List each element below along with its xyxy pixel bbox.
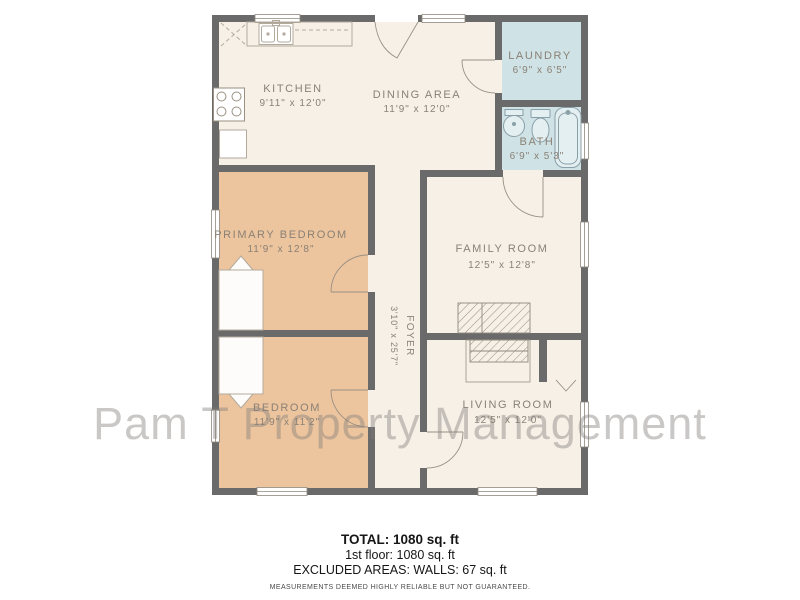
window-kitchen <box>255 15 300 23</box>
window-dining <box>422 15 465 23</box>
label-laundry: LAUNDRY <box>508 50 572 62</box>
floor1-area: 1st floor: 1080 sq. ft <box>0 548 800 563</box>
total-area: TOTAL: 1080 sq. ft <box>0 532 800 548</box>
label-dining-area: DINING AREA <box>373 89 462 101</box>
excluded-areas: EXCLUDED AREAS: WALLS: 67 sq. ft <box>0 563 800 578</box>
kitchen-sink-icon <box>259 24 293 45</box>
label-kitchen: KITCHEN <box>263 83 322 95</box>
disclaimer-text: MEASUREMENTS DEEMED HIGHLY RELIABLE BUT … <box>0 584 800 591</box>
dims-foyer: 3'10" x 25'7" <box>389 306 399 366</box>
dims-bath: 6'9" x 5'3" <box>510 151 565 162</box>
dims-kitchen: 9'11" x 12'0" <box>259 98 326 109</box>
label-bath: BATH <box>520 136 555 148</box>
kitchen-cabinet <box>220 130 247 158</box>
label-bedroom: BEDROOM <box>253 402 321 414</box>
label-foyer: FOYER <box>404 315 415 356</box>
floorplan-page: KITCHEN 9'11" x 12'0" DINING AREA 11'9" … <box>0 0 800 600</box>
window-family-room <box>581 222 589 267</box>
window-bedroom-left <box>212 410 220 442</box>
bathroom-sink-icon <box>504 110 525 137</box>
window-bath <box>581 123 589 159</box>
window-living-room-right <box>581 402 589 447</box>
dims-bedroom: 11'9" x 11'2" <box>254 417 320 428</box>
stove-icon <box>214 88 245 121</box>
dims-primary-bedroom: 11'9" x 12'8" <box>247 244 314 255</box>
primary-closet <box>219 270 263 330</box>
label-primary-bedroom: PRIMARY BEDROOM <box>214 229 348 241</box>
dims-living-room: 12'5" x 12'0" <box>474 415 542 426</box>
label-living-room: LIVING ROOM <box>463 399 554 411</box>
window-living-room-bottom <box>478 488 537 496</box>
dims-laundry: 6'9" x 6'5" <box>513 65 568 76</box>
window-bedroom-bottom <box>257 488 307 496</box>
dims-family-room: 12'5" x 12'8" <box>468 260 536 271</box>
floor-plan: KITCHEN 9'11" x 12'0" DINING AREA 11'9" … <box>0 0 800 600</box>
summary-block: TOTAL: 1080 sq. ft 1st floor: 1080 sq. f… <box>0 532 800 591</box>
bedroom-closet <box>219 337 263 394</box>
label-family-room: FAMILY ROOM <box>456 243 549 255</box>
entry-opening <box>375 15 418 22</box>
dims-dining-area: 11'9" x 12'0" <box>383 104 450 115</box>
